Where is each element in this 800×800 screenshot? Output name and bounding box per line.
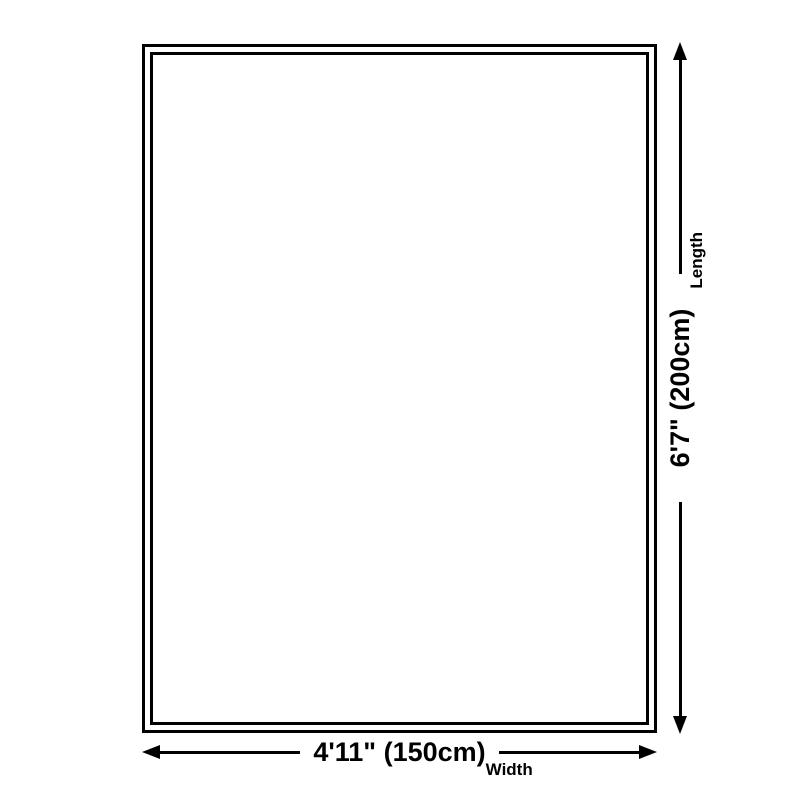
width-label: Width: [486, 761, 533, 778]
length-dimension-line-lower: [679, 502, 682, 716]
arrow-down-icon: [673, 716, 687, 734]
arrow-left-icon: [142, 745, 160, 759]
width-value: 4'11" (150cm): [313, 737, 485, 767]
product-outline-inner-rect: [150, 52, 649, 725]
width-dimension-line-right: [499, 751, 639, 754]
width-dimension-text: 4'11" (150cm) Width: [300, 739, 498, 766]
product-outline-rect: [142, 44, 657, 733]
length-dimension-text: 6'7" (200cm) Length: [667, 274, 694, 503]
length-dimension-line-upper: [679, 60, 682, 274]
length-dimension-arrow: 6'7" (200cm) Length: [660, 42, 700, 734]
arrow-up-icon: [673, 42, 687, 60]
width-dimension-arrow: 4'11" (150cm) Width: [142, 732, 657, 772]
length-label: Length: [688, 232, 705, 289]
arrow-right-icon: [639, 745, 657, 759]
length-value: 6'7" (200cm): [665, 309, 695, 468]
width-dimension-line-left: [160, 751, 300, 754]
